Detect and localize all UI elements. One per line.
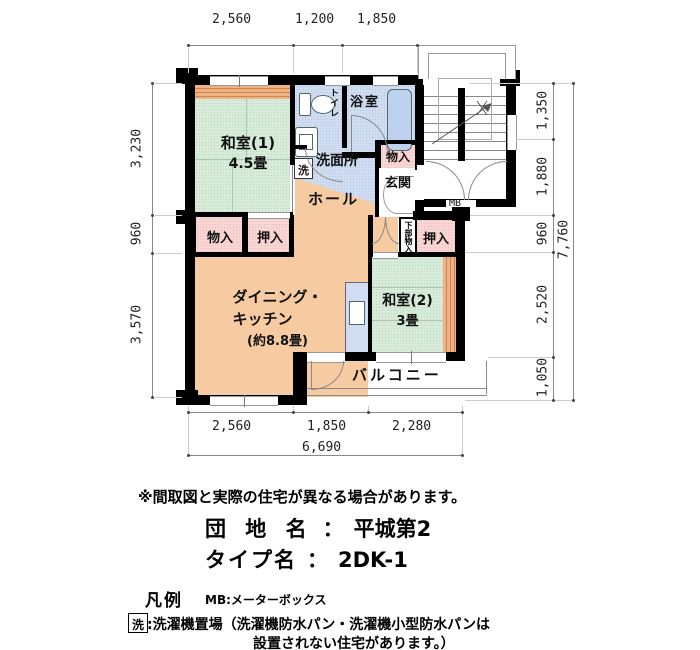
window-dk-south	[210, 396, 278, 406]
closet-left-label: 押入	[257, 227, 283, 246]
fusuma-washitsu1-south	[248, 212, 290, 219]
wall-left	[185, 75, 195, 405]
storage-left-box: 物入	[194, 215, 246, 257]
dim-right-2: 1,880	[536, 147, 551, 207]
dim-top-3: 1,850	[357, 12, 396, 27]
floorplan-canvas: 物入 押入 押入 下部物入 物入 洗	[0, 0, 700, 650]
under-storage-label: 下部物入	[404, 221, 412, 253]
dim-top-1: 2,560	[212, 12, 251, 27]
window-toilet-north	[325, 76, 350, 86]
dim-line-left	[152, 83, 153, 397]
closet-left-box: 押入	[246, 215, 294, 257]
wall-toilet-bath	[342, 85, 347, 148]
dim-bottom-2: 1,850	[307, 419, 346, 434]
toilet-label: トイレ	[327, 88, 340, 144]
type-name-row: タイプ名：2DK-1	[205, 544, 408, 574]
washitsu1-name: 和室(1)	[200, 132, 296, 153]
disclaimer-note: ※間取図と実際の住宅が異なる場合があります。	[138, 486, 466, 507]
type-name-value: 2DK-1	[338, 548, 408, 572]
wall-right-lower	[456, 215, 465, 361]
dk-size: (約8.8畳)	[195, 330, 360, 349]
washitsu2-name: 和室(2)	[372, 290, 443, 310]
dim-bottom-3: 2,280	[392, 419, 431, 434]
wall-stair-west	[415, 85, 424, 165]
dim-right-4: 2,520	[536, 275, 551, 335]
corner-post	[176, 68, 198, 84]
washitsu2-wood-band	[443, 255, 456, 352]
dim-left-3: 3,570	[130, 295, 145, 355]
closet-right-box: 押入	[415, 217, 457, 257]
stair-shaft-outline-inner	[428, 53, 506, 79]
dim-line-right	[553, 83, 554, 400]
dim-right-total: 7,760	[557, 210, 572, 270]
wall-closet-divider	[242, 215, 246, 252]
washitsu2-size: 3畳	[372, 310, 443, 329]
sliding-door-washitsu2-balcony	[376, 352, 446, 363]
dim-line-right-total	[573, 83, 574, 400]
type-name-label: タイプ名	[205, 548, 297, 572]
dim-left-2: 960	[130, 204, 145, 264]
legend-title: 凡例	[145, 586, 183, 611]
balcony-right-edge	[486, 361, 487, 394]
estate-name-label: 団 地 名	[205, 517, 313, 541]
legend-laundry-symbol-box: 洗	[128, 613, 148, 633]
wall-stair-west-stub	[415, 200, 424, 217]
bath-door-leaf	[351, 115, 352, 152]
estate-name-value: 平城第2	[354, 517, 432, 541]
legend-laundry-text: :洗濯機置場（洗濯機防水パン・洗濯機小型防水パンは	[147, 614, 490, 634]
wall-under-storage-south	[398, 252, 458, 257]
wall-closet-east	[289, 215, 293, 257]
dim-bottom-total: 6,690	[302, 440, 341, 455]
washitsu1-size: 4.5畳	[200, 153, 296, 173]
tatami-grid-line	[372, 287, 443, 288]
stair-direction-arrow	[424, 92, 504, 150]
dim-line-top	[188, 45, 417, 46]
balcony-label: バルコニー	[352, 364, 442, 385]
wall-closet-row-south	[185, 252, 293, 257]
dim-left-1: 3,230	[130, 119, 145, 179]
laundry-symbol: 洗	[298, 164, 309, 177]
storage-left-label: 物入	[207, 227, 233, 246]
fusuma-corridor-washitsu2	[373, 252, 398, 259]
balcony-left-wall	[293, 352, 307, 405]
dim-bottom-1: 2,560	[212, 419, 251, 434]
dim-top-2: 1,200	[295, 12, 334, 27]
under-storage-box: 下部物入	[399, 217, 417, 257]
landing-door-left-arc	[426, 161, 465, 200]
hall-label: ホール	[308, 188, 359, 209]
washroom-label: 洗面所	[316, 150, 358, 170]
washitsu1-wood-band	[195, 85, 290, 99]
dim-line-bottom	[188, 412, 462, 413]
balcony-door-leaf	[311, 361, 312, 389]
legend-laundry-text2: 設置されない住宅があります。）	[253, 633, 455, 650]
bath-label: 浴室	[350, 91, 380, 110]
toilet-tank-icon	[299, 93, 311, 116]
dk-name-line2: キッチン	[180, 308, 345, 329]
corner-post	[452, 207, 470, 221]
estate-name-sep: ：	[323, 517, 344, 541]
dim-right-3: 960	[536, 204, 551, 264]
dk-name-line1: ダイニング・	[195, 286, 360, 307]
mb-label: MB	[449, 198, 461, 209]
legend-laundry-symbol: 洗	[132, 618, 144, 632]
estate-name-row: 団 地 名：平城第2	[205, 513, 431, 543]
balcony-railing	[307, 388, 487, 396]
dim-right-1: 1,350	[536, 81, 551, 141]
legend-mb: MB:メーターボックス	[205, 591, 327, 608]
landing-door-right-arc	[468, 161, 507, 200]
dim-right-5: 1,050	[536, 348, 551, 408]
window-washitsu1-north	[210, 76, 268, 86]
dim-line-bottom-total	[188, 455, 462, 456]
type-name-sep: ：	[307, 548, 328, 572]
closet-right-label: 押入	[423, 228, 449, 247]
window-bath-north	[373, 76, 398, 86]
genkan-label: 玄関	[383, 172, 413, 191]
window-stairwell-east	[507, 115, 517, 150]
